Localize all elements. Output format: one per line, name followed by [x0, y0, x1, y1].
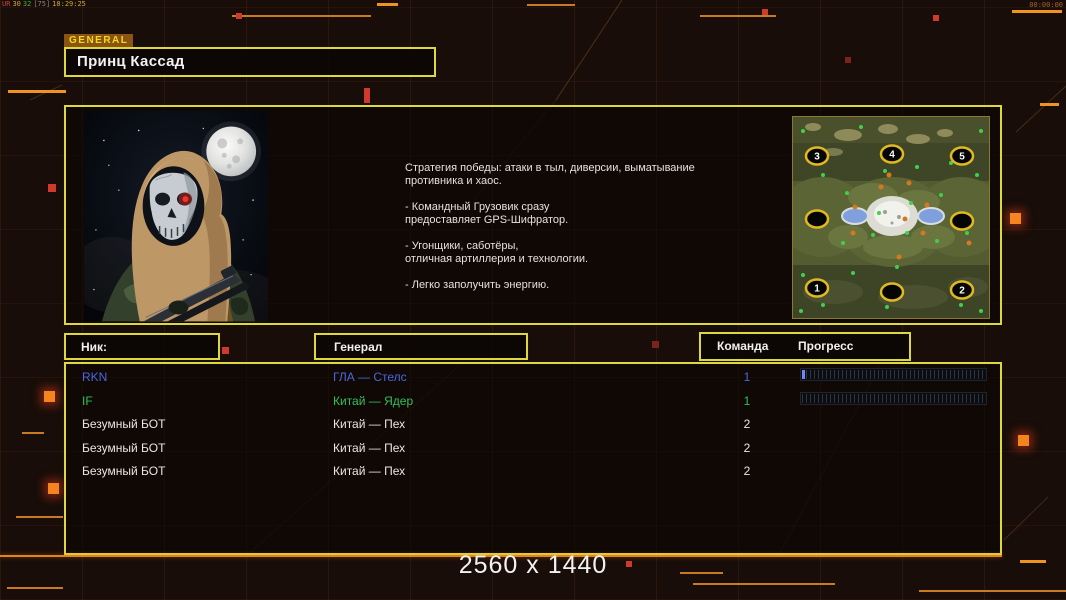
decor-square [364, 88, 370, 103]
svg-text:1: 1 [814, 284, 820, 295]
player-team: 2 [736, 441, 758, 455]
player-general: Китай — Ядер [333, 394, 413, 408]
decor-square [845, 57, 851, 63]
player-general: Китай — Пех [333, 441, 405, 455]
general-tab: GENERAL [64, 34, 133, 47]
player-row: RKN ГЛА — Стелс 1 [66, 368, 1000, 390]
debug-segment: [75] [33, 0, 50, 8]
player-nick: Безумный БОТ [82, 464, 165, 478]
debug-segment: 32 [23, 0, 31, 8]
spawn-point: 1 [806, 280, 828, 297]
general-portrait [84, 110, 268, 322]
briefing-panel: Стратегия победы: атаки в тыл, диверсии,… [64, 105, 1002, 325]
player-row: Безумный БОТ Китай — Пех 2 [66, 439, 1000, 461]
red-eye [182, 196, 188, 202]
decor-line [1040, 103, 1059, 106]
player-general: Китай — Пех [333, 464, 405, 478]
player-nick: Безумный БОТ [82, 441, 165, 455]
decor-line [7, 587, 63, 589]
decor-line [8, 90, 66, 93]
strategy-briefing-text: Стратегия победы: атаки в тыл, диверсии,… [405, 162, 735, 292]
debug-segment: UR [2, 0, 10, 8]
player-team: 1 [736, 394, 758, 408]
game-clock: 00:00:00 [1029, 1, 1063, 9]
svg-text:3: 3 [814, 152, 820, 163]
svg-text:4: 4 [889, 150, 895, 161]
debug-readout: UR3032[75]18:29:25 [2, 1, 88, 8]
svg-text:5: 5 [959, 152, 965, 163]
decor-line [700, 15, 776, 17]
spawn-point [951, 213, 973, 230]
decor-square [933, 15, 939, 21]
decor-square [48, 184, 56, 192]
player-team: 2 [736, 464, 758, 478]
decor-line [527, 4, 575, 6]
debug-segment: 30 [12, 0, 20, 8]
decor-square [762, 9, 768, 15]
player-general: Китай — Пех [333, 417, 405, 431]
player-general: ГЛА — Стелс [333, 370, 407, 384]
team-header-label: Команда [717, 339, 768, 353]
player-nick: RKN [82, 370, 107, 384]
decor-square [48, 483, 59, 494]
loading-progress-bar [800, 368, 987, 381]
spawn-point [806, 211, 828, 228]
spawn-point: 3 [806, 148, 828, 165]
decor-square [44, 391, 55, 402]
decor-square [1018, 435, 1029, 446]
player-table-panel: RKN ГЛА — Стелс 1 IF Китай — Ядер 1 Безу… [64, 362, 1002, 555]
map-preview: 3 4 5 1 2 [792, 116, 990, 319]
svg-text:2: 2 [959, 286, 965, 297]
decor-square [652, 341, 659, 348]
spawn-point: 5 [951, 148, 973, 165]
debug-segment: 18:29:25 [52, 0, 86, 8]
general-tab-label: GENERAL [69, 35, 128, 46]
player-row: Безумный БОТ Китай — Пех 2 [66, 462, 1000, 484]
player-nick: Безумный БОТ [82, 417, 165, 431]
player-row: Безумный БОТ Китай — Пех 2 [66, 415, 1000, 437]
decor-line [22, 432, 44, 434]
decor-line [16, 516, 63, 518]
decor-square [1010, 213, 1021, 224]
spawn-point [881, 284, 903, 301]
player-team: 2 [736, 417, 758, 431]
spawn-point: 4 [881, 146, 903, 163]
progress-fill [802, 370, 805, 379]
spawn-point: 2 [951, 282, 973, 299]
decor-square [236, 13, 242, 19]
decor-line [693, 583, 835, 585]
resolution-label: 2560 x 1440 [0, 551, 1066, 580]
decor-square [222, 347, 229, 354]
nick-header-box: Ник: [64, 333, 220, 360]
team-progress-header-box: Команда Прогресс [699, 332, 911, 361]
decor-line [1012, 10, 1062, 13]
player-nick: IF [82, 394, 93, 408]
decor-line [377, 3, 398, 6]
general-title-box: Принц Кассад [64, 47, 436, 77]
loading-progress-bar [800, 392, 987, 405]
general-header-box: Генерал [314, 333, 528, 360]
general-name: Принц Кассад [66, 49, 434, 70]
player-row: IF Китай — Ядер 1 [66, 392, 1000, 414]
nick-header-label: Ник: [81, 340, 107, 354]
progress-header-label: Прогресс [798, 339, 853, 353]
general-header-label: Генерал [334, 340, 382, 354]
player-team: 1 [736, 370, 758, 384]
decor-line [919, 590, 1066, 592]
decor-line [232, 15, 371, 17]
